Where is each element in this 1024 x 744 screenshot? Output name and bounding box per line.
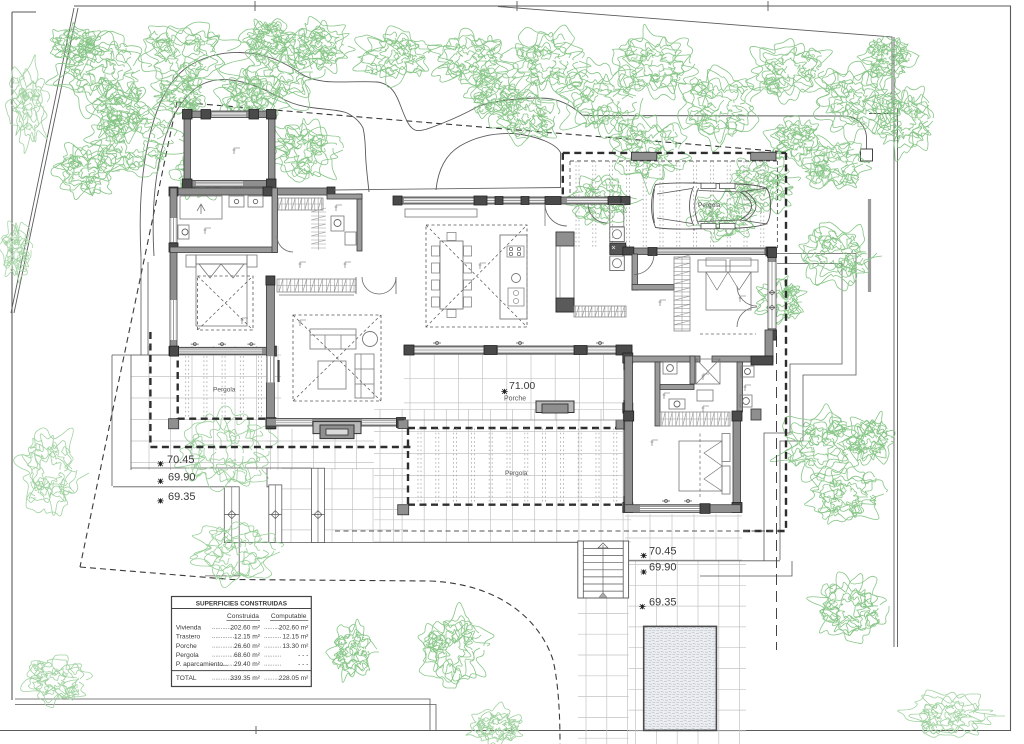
svg-text:SUPERFICIES CONSTRUIDAS: SUPERFICIES CONSTRUIDAS	[196, 601, 288, 608]
svg-text:..............: ..............	[212, 651, 236, 658]
svg-text:71.00: 71.00	[509, 380, 535, 392]
svg-text:..............: ..............	[212, 661, 236, 668]
svg-text:..........: ..........	[264, 661, 281, 668]
svg-text:..............: ..............	[212, 633, 236, 640]
svg-text:69.35: 69.35	[168, 491, 196, 503]
svg-text:228.05 m²: 228.05 m²	[279, 675, 309, 682]
svg-text:Pergola: Pergola	[176, 652, 199, 659]
svg-text:69.90: 69.90	[649, 562, 677, 574]
svg-text:202.60 m²: 202.60 m²	[279, 625, 309, 632]
svg-text:29.40 m²: 29.40 m²	[234, 661, 261, 668]
svg-text:Pergola: Pergola	[505, 470, 528, 477]
svg-text:69.35: 69.35	[649, 597, 677, 609]
svg-text:..............: ..............	[212, 642, 236, 649]
svg-text:12.15 m²: 12.15 m²	[282, 634, 309, 641]
svg-text:Pergola: Pergola	[698, 202, 721, 209]
svg-text:68.60 m²: 68.60 m²	[234, 652, 261, 659]
svg-text:Porche: Porche	[504, 396, 526, 403]
svg-text:70.45: 70.45	[649, 546, 677, 558]
svg-text:339.35 m²: 339.35 m²	[230, 675, 260, 682]
svg-text:..........: ..........	[264, 651, 281, 658]
svg-text:202.60 m²: 202.60 m²	[230, 625, 260, 632]
svg-text:Trastero: Trastero	[176, 634, 201, 641]
svg-text:.........: .........	[264, 675, 280, 682]
svg-text:12.15 m²: 12.15 m²	[234, 634, 261, 641]
svg-text:TOTAL: TOTAL	[176, 675, 197, 682]
svg-text:69.90: 69.90	[168, 472, 196, 484]
svg-text:- - -: - - -	[298, 661, 308, 668]
svg-text:- - -: - - -	[298, 652, 308, 659]
svg-text:26.60 m²: 26.60 m²	[234, 643, 261, 650]
svg-text:..........: ..........	[264, 633, 281, 640]
svg-text:..........: ..........	[264, 642, 281, 649]
svg-text:Computable: Computable	[271, 613, 307, 620]
svg-text:Pergola: Pergola	[213, 387, 236, 394]
svg-text:70.45: 70.45	[167, 454, 195, 466]
svg-text:Vivienda: Vivienda	[176, 625, 202, 632]
svg-text:Construida: Construida	[227, 613, 259, 620]
svg-text:13.30 m²: 13.30 m²	[282, 643, 309, 650]
svg-text:Porche: Porche	[176, 643, 197, 650]
